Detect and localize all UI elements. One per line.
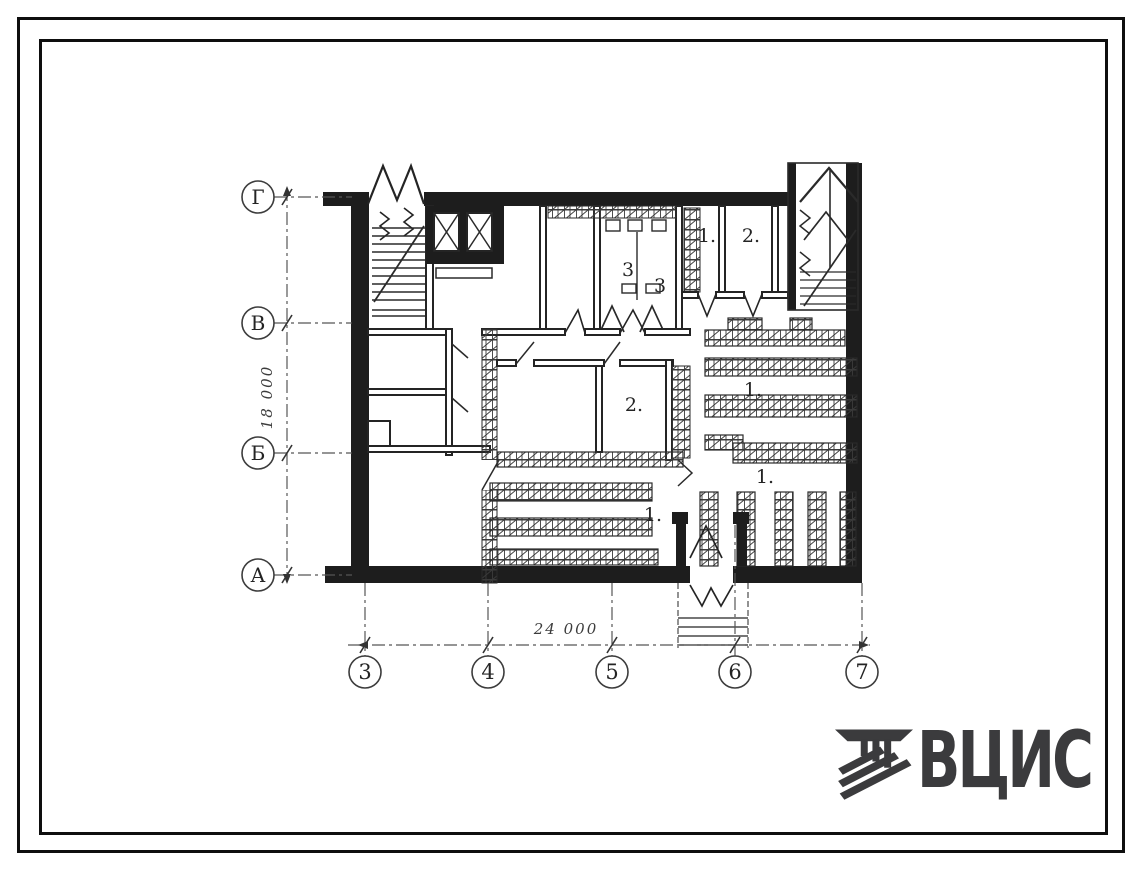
axis-marker-row-v: В [242,307,274,339]
corridor-walls [368,310,690,335]
room-number-label: 2. [742,225,760,247]
vcis-emblem-icon [835,720,913,810]
rack-shelving-right [705,318,857,463]
axis-label: Б [251,441,266,465]
axis-marker-col-3: 3 [349,656,381,688]
axis-marker-col-7: 7 [846,656,878,688]
scanned-drawing-page: Г В Б А 3 4 [0,0,1139,869]
room-number-label: 1. [698,225,716,247]
axis-label: В [251,311,266,335]
axis-marker-row-g: Г [242,181,274,213]
axis-label: Г [251,185,264,209]
room-number-label: 3 [654,275,666,297]
vcis-logo: ВЦИС [835,720,1139,810]
dimension-horizontal-label: 24 000 [533,620,599,638]
axis-marker-col-4: 4 [472,656,504,688]
dimension-vertical-label: 18 000 [258,365,276,430]
left-rooms [368,329,490,455]
axis-label: 7 [855,660,868,684]
entrance-top-left [368,166,424,240]
axis-marker-row-a: А [242,559,274,591]
vcis-logo-text: ВЦИС [917,722,1091,800]
room-number-label: 2. [625,394,643,416]
axis-marker-col-6: 6 [719,656,751,688]
elevator-shafts [426,206,504,278]
rack-shelving-bottom-right [700,492,856,566]
central-masonry-wall [480,329,499,583]
axis-marker-row-b: Б [242,437,274,469]
axis-label: 5 [605,660,618,684]
axis-marker-col-5: 5 [596,656,628,688]
axis-label: 6 [728,660,741,684]
axis-label: 3 [358,660,371,684]
axis-label: 4 [481,660,494,684]
room-number-label: 1. [756,466,774,488]
room-number-label: 3 [622,259,634,281]
room-number-label: 1. [744,379,762,401]
axis-label: А [250,563,265,587]
room-number-label: 1. [644,504,662,526]
axis-markers-cols: 3 4 5 6 7 [349,656,878,688]
